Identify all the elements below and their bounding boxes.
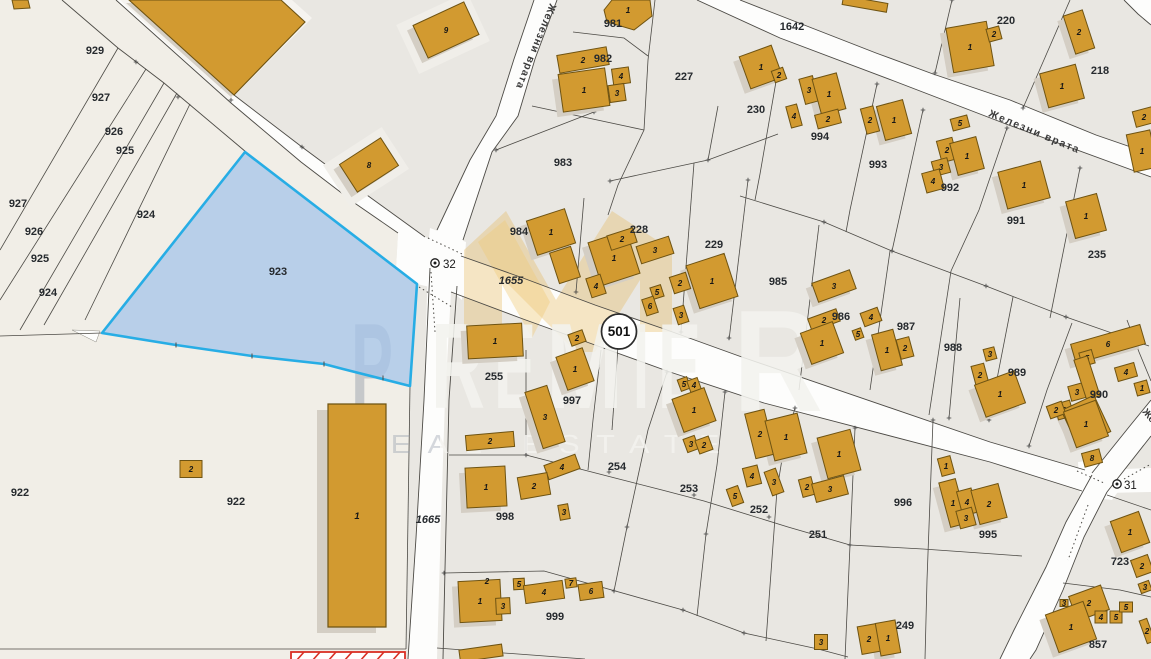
svg-text:2: 2	[902, 344, 908, 353]
svg-text:227: 227	[675, 71, 693, 83]
svg-text:2: 2	[986, 500, 992, 509]
svg-text:990: 990	[1090, 389, 1108, 401]
svg-text:1: 1	[784, 433, 789, 442]
svg-text:3: 3	[964, 514, 969, 523]
svg-text:252: 252	[750, 504, 768, 516]
svg-text:923: 923	[269, 266, 287, 278]
svg-text:2: 2	[757, 430, 763, 439]
svg-text:501: 501	[608, 324, 631, 339]
svg-text:5: 5	[655, 288, 660, 297]
svg-text:2: 2	[619, 235, 625, 244]
svg-text:5: 5	[733, 492, 738, 501]
svg-text:926: 926	[25, 226, 43, 238]
svg-text:1: 1	[626, 6, 631, 15]
svg-text:3: 3	[689, 440, 694, 449]
svg-text:997: 997	[563, 395, 581, 407]
svg-text:1: 1	[885, 346, 890, 355]
svg-text:987: 987	[897, 321, 915, 333]
svg-text:4: 4	[1123, 368, 1129, 377]
svg-text:1655: 1655	[499, 275, 524, 287]
svg-text:988: 988	[944, 342, 962, 354]
svg-text:991: 991	[1007, 215, 1025, 227]
svg-text:4: 4	[541, 588, 547, 597]
svg-text:2: 2	[1141, 113, 1147, 122]
svg-text:249: 249	[896, 620, 914, 632]
svg-text:229: 229	[705, 239, 723, 251]
svg-text:1642: 1642	[780, 21, 804, 33]
svg-text:3: 3	[615, 89, 620, 98]
svg-text:2: 2	[701, 441, 707, 450]
svg-text:3: 3	[653, 246, 658, 255]
svg-text:3: 3	[543, 413, 548, 422]
svg-text:999: 999	[546, 611, 564, 623]
svg-text:1: 1	[759, 63, 764, 72]
svg-text:1: 1	[837, 450, 842, 459]
svg-text:924: 924	[137, 209, 156, 221]
svg-text:I: I	[633, 298, 649, 434]
svg-text:857: 857	[1089, 639, 1107, 651]
svg-text:4: 4	[691, 381, 697, 390]
svg-text:2: 2	[188, 465, 194, 474]
svg-text:2: 2	[1053, 406, 1059, 415]
svg-text:3: 3	[819, 638, 824, 647]
svg-text:5: 5	[517, 580, 522, 589]
svg-text:2: 2	[574, 334, 580, 343]
svg-text:3: 3	[501, 602, 506, 611]
svg-text:2: 2	[580, 56, 586, 65]
svg-text:1: 1	[998, 390, 1003, 399]
svg-text:4: 4	[868, 313, 874, 322]
svg-text:994: 994	[811, 131, 830, 143]
svg-text:1: 1	[573, 365, 578, 374]
svg-text:1: 1	[944, 462, 949, 471]
svg-text:2: 2	[866, 635, 872, 644]
svg-text:2: 2	[991, 30, 997, 39]
svg-text:5: 5	[856, 330, 861, 339]
svg-text:8: 8	[367, 161, 372, 170]
svg-text:3: 3	[832, 282, 837, 291]
svg-text:723: 723	[1111, 556, 1129, 568]
svg-text:235: 235	[1088, 249, 1106, 261]
svg-text:995: 995	[979, 529, 997, 541]
svg-text:R: R	[431, 298, 485, 434]
svg-text:1: 1	[1084, 212, 1089, 221]
svg-text:6: 6	[648, 302, 653, 311]
svg-text:2: 2	[804, 483, 810, 492]
svg-text:998: 998	[496, 511, 514, 523]
svg-text:982: 982	[594, 53, 612, 65]
svg-text:925: 925	[116, 145, 134, 157]
svg-text:4: 4	[964, 498, 970, 507]
svg-text:3: 3	[562, 508, 567, 517]
svg-text:2: 2	[484, 577, 490, 586]
svg-text:922: 922	[11, 487, 29, 499]
svg-text:3: 3	[1075, 388, 1080, 397]
svg-text:2: 2	[1086, 599, 1092, 608]
svg-text:31: 31	[1124, 480, 1137, 492]
svg-text:4: 4	[791, 112, 797, 121]
svg-text:1: 1	[827, 90, 832, 99]
svg-text:926: 926	[105, 126, 123, 138]
svg-text:5: 5	[958, 119, 963, 128]
svg-text:2: 2	[944, 146, 950, 155]
svg-text:984: 984	[510, 226, 529, 238]
svg-text:4: 4	[749, 472, 755, 481]
svg-text:6: 6	[1106, 340, 1111, 349]
svg-text:1: 1	[1084, 420, 1089, 429]
svg-text:3: 3	[807, 86, 812, 95]
svg-text:2: 2	[1139, 562, 1145, 571]
svg-text:230: 230	[747, 104, 765, 116]
svg-text:1: 1	[820, 339, 825, 348]
svg-text:1: 1	[582, 86, 587, 95]
svg-text:1: 1	[710, 277, 715, 286]
svg-text:3: 3	[1143, 583, 1148, 592]
svg-text:4: 4	[618, 72, 624, 81]
svg-text:924: 924	[39, 287, 58, 299]
svg-text:2: 2	[487, 437, 493, 446]
svg-text:2: 2	[1144, 627, 1150, 636]
svg-text:1: 1	[968, 43, 973, 52]
svg-text:981: 981	[604, 18, 622, 30]
svg-text:1: 1	[692, 406, 697, 415]
svg-text:2: 2	[825, 115, 831, 124]
svg-text:1: 1	[612, 254, 617, 263]
svg-text:5: 5	[682, 380, 687, 389]
svg-text:2: 2	[776, 71, 782, 80]
svg-text:986: 986	[832, 311, 850, 323]
svg-text:992: 992	[941, 182, 959, 194]
svg-text:1: 1	[951, 499, 956, 508]
svg-text:228: 228	[630, 224, 648, 236]
svg-text:922: 922	[227, 496, 245, 508]
svg-text:2: 2	[1076, 28, 1082, 37]
svg-text:1: 1	[1140, 147, 1145, 156]
svg-text:1: 1	[1069, 623, 1074, 632]
svg-text:3: 3	[828, 485, 833, 494]
svg-text:2: 2	[867, 116, 873, 125]
svg-text:1: 1	[1140, 384, 1145, 393]
svg-text:5: 5	[1124, 603, 1129, 612]
svg-text:1: 1	[354, 511, 359, 522]
svg-text:1: 1	[549, 228, 554, 237]
svg-text:1665: 1665	[416, 514, 441, 526]
svg-text:9: 9	[444, 26, 449, 35]
svg-text:929: 929	[86, 45, 104, 57]
svg-text:983: 983	[554, 157, 572, 169]
svg-text:4: 4	[559, 463, 565, 472]
svg-text:3: 3	[988, 350, 993, 359]
svg-text:996: 996	[894, 497, 912, 509]
svg-text:1: 1	[1128, 528, 1133, 537]
svg-text:4: 4	[1098, 613, 1104, 622]
svg-text:254: 254	[608, 461, 627, 473]
svg-text:1: 1	[1022, 181, 1027, 190]
svg-text:255: 255	[485, 371, 503, 383]
svg-text:218: 218	[1091, 65, 1109, 77]
svg-text:2: 2	[677, 279, 683, 288]
svg-text:32: 32	[443, 259, 456, 271]
svg-text:3: 3	[1062, 599, 1067, 608]
svg-text:220: 220	[997, 15, 1015, 27]
svg-text:985: 985	[769, 276, 787, 288]
svg-text:1: 1	[892, 116, 897, 125]
svg-text:3: 3	[772, 478, 777, 487]
svg-text:1: 1	[965, 152, 970, 161]
svg-text:993: 993	[869, 159, 887, 171]
svg-text:927: 927	[92, 92, 110, 104]
svg-text:2: 2	[977, 371, 983, 380]
svg-text:1: 1	[484, 483, 489, 492]
svg-text:1: 1	[493, 337, 498, 346]
svg-text:253: 253	[680, 483, 698, 495]
svg-text:925: 925	[31, 253, 49, 265]
svg-text:2: 2	[531, 482, 537, 491]
svg-text:1: 1	[478, 597, 483, 606]
svg-text:1: 1	[1060, 82, 1065, 91]
svg-text:7: 7	[569, 579, 574, 588]
svg-text:6: 6	[589, 587, 594, 596]
svg-text:989: 989	[1008, 367, 1026, 379]
svg-text:3: 3	[679, 311, 684, 320]
svg-text:4: 4	[930, 177, 936, 186]
svg-text:4: 4	[593, 282, 599, 291]
svg-text:5: 5	[1114, 613, 1119, 622]
svg-text:251: 251	[809, 529, 827, 541]
svg-text:8: 8	[1090, 454, 1095, 463]
svg-text:927: 927	[9, 198, 27, 210]
svg-text:1: 1	[886, 634, 891, 643]
